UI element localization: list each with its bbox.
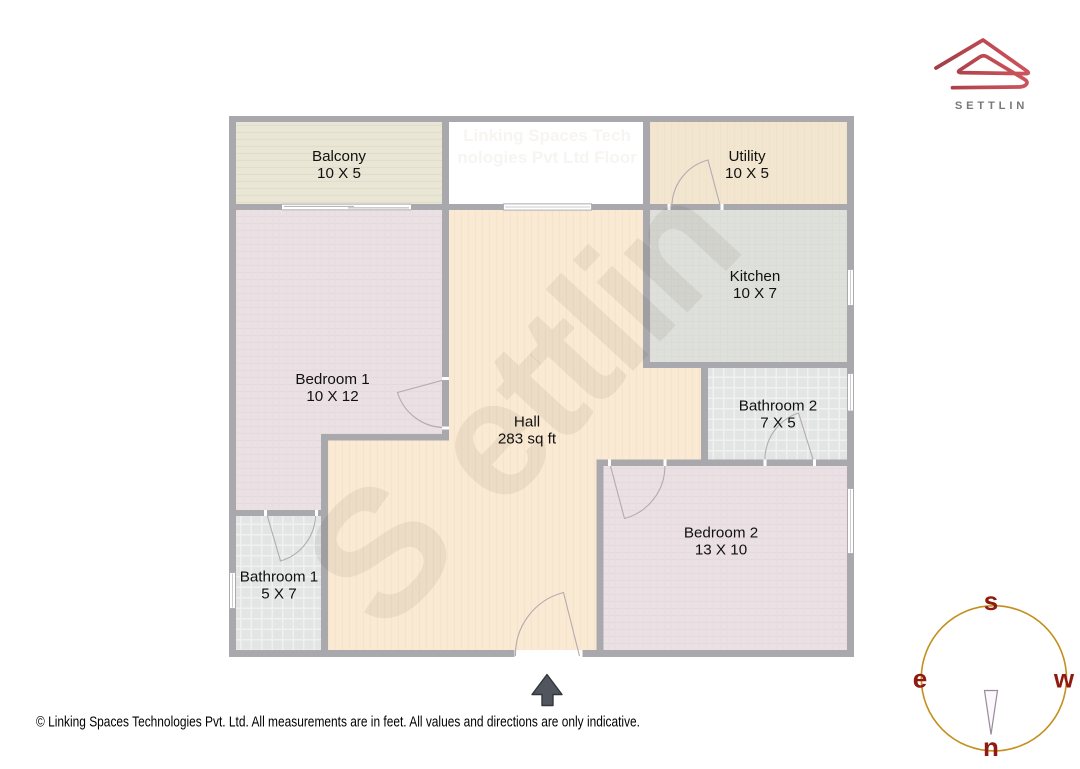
svg-text:5 X 7: 5 X 7 [261, 586, 296, 603]
svg-text:nologies Pvt Ltd Floor: nologies Pvt Ltd Floor [457, 148, 637, 167]
svg-text:Bedroom 1: Bedroom 1 [295, 371, 369, 388]
svg-text:s: s [984, 586, 998, 616]
svg-text:7 X 5: 7 X 5 [760, 415, 795, 432]
svg-text:Linking Spaces Tech: Linking Spaces Tech [463, 126, 631, 145]
svg-text:e: e [913, 664, 927, 694]
svg-text:Utility: Utility [728, 148, 766, 165]
svg-text:10 X 7: 10 X 7 [733, 285, 777, 302]
svg-text:Bathroom 1: Bathroom 1 [240, 569, 319, 586]
svg-text:10 X 12: 10 X 12 [306, 388, 358, 405]
svg-text:Kitchen: Kitchen [730, 268, 781, 285]
svg-text:10 X 5: 10 X 5 [725, 165, 769, 182]
svg-text:283 sq ft: 283 sq ft [498, 431, 557, 448]
svg-text:Bathroom 2: Bathroom 2 [739, 398, 818, 415]
svg-text:w: w [1053, 664, 1075, 694]
svg-text:13 X 10: 13 X 10 [695, 542, 747, 559]
svg-text:Hall: Hall [514, 414, 540, 431]
svg-text:SETTLIN: SETTLIN [955, 100, 1028, 112]
svg-text:Bedroom 2: Bedroom 2 [684, 525, 758, 542]
svg-text:Balcony: Balcony [312, 148, 366, 165]
svg-text:10 X 5: 10 X 5 [317, 165, 361, 182]
svg-text:n: n [983, 732, 999, 762]
svg-text:© Linking Spaces Technologies: © Linking Spaces Technologies Pvt. Ltd. … [36, 714, 640, 731]
